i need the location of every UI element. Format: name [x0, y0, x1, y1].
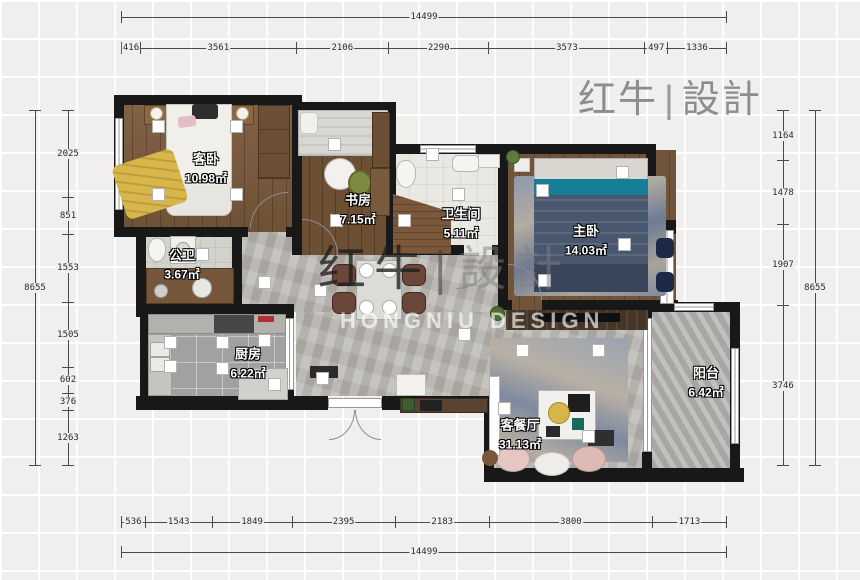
wall	[136, 304, 294, 314]
dim-label: 2395	[332, 517, 356, 527]
dim-segment: 1164	[777, 110, 789, 160]
room-area: 14.03㎡	[565, 243, 607, 260]
floor-plan-canvas: 14499 41635612106229035734971336 5361543…	[0, 0, 860, 580]
watermark-divider: |	[434, 243, 454, 296]
ceiling-light	[328, 138, 341, 151]
yellow-pouf	[548, 402, 570, 424]
brand-logo-cn1: 红牛	[578, 79, 658, 121]
room-name: 书房	[345, 193, 371, 208]
dim-label: 14499	[409, 12, 438, 22]
dim-segment: 602	[62, 367, 74, 394]
room-name: 公卫	[169, 248, 195, 263]
entry-door-arc-left	[329, 410, 355, 440]
dim-label: 1713	[678, 517, 702, 527]
cabinet	[372, 112, 390, 168]
dim-label: 3800	[559, 517, 583, 527]
ceiling-light	[216, 336, 229, 349]
ceiling-light	[452, 188, 465, 201]
dim-label: 3573	[555, 43, 579, 53]
table-lamp	[236, 107, 249, 120]
decor-items	[420, 400, 442, 411]
ceiling-light	[616, 166, 629, 179]
table-decor	[546, 426, 560, 437]
dim-segment: 536	[121, 516, 145, 528]
spice-rack	[258, 316, 274, 322]
bed-tray	[192, 104, 218, 119]
dim-label: 536	[124, 517, 142, 527]
dim-segment: 3561	[140, 42, 296, 54]
room-name: 客餐厅	[500, 418, 539, 433]
ceiling-light	[152, 188, 165, 201]
entry-door-arc-right	[355, 410, 381, 440]
room-name: 客卧	[193, 152, 219, 167]
dim-label: 8655	[23, 283, 47, 293]
ceiling-light	[426, 148, 439, 161]
room-label-kitchen: 厨房6.22㎡	[230, 343, 265, 384]
dim-segment: 416	[121, 42, 140, 54]
room-name: 主卧	[573, 224, 599, 239]
plant	[506, 150, 520, 164]
dim-segment: 8655	[809, 110, 821, 466]
brand-logo-cn2: 設計	[682, 79, 762, 121]
dim-segment: 2290	[388, 42, 488, 54]
dim-segment: 1849	[212, 516, 292, 528]
ceiling-light	[316, 372, 329, 385]
dim-chain-left-total: 8655	[29, 110, 41, 466]
watermark-cn: 红牛|設計	[318, 246, 571, 294]
ceiling-light	[230, 188, 243, 201]
wardrobe	[258, 105, 290, 179]
table-decor	[568, 394, 590, 412]
room-name: 阳台	[693, 366, 719, 381]
dim-segment: 3800	[489, 516, 652, 528]
room-label-guest-wc: 公卫3.67㎡	[164, 244, 199, 285]
dim-label: 14499	[409, 547, 438, 557]
pillow	[300, 112, 318, 134]
dim-label: 416	[122, 43, 140, 53]
watermark-en: HONGNIU DESIGN	[340, 308, 604, 334]
dim-label: 851	[59, 211, 77, 221]
dim-label: 1336	[685, 43, 709, 53]
ceiling-light	[230, 120, 243, 133]
dim-segment: 497	[644, 42, 667, 54]
ceiling-light	[216, 362, 229, 375]
pink-armchair	[572, 446, 606, 472]
dim-segment: 376	[62, 393, 74, 410]
white-armchair	[534, 452, 570, 476]
dim-segment: 2395	[292, 516, 395, 528]
curtain	[656, 238, 674, 258]
room-area: 10.98㎡	[185, 171, 227, 188]
cooktop	[214, 315, 254, 333]
dim-segment: 1336	[667, 42, 727, 54]
dim-chain-bottom-total: 14499	[121, 546, 727, 558]
dim-label: 1553	[56, 263, 80, 273]
ceiling-light	[618, 238, 631, 251]
room-name: 厨房	[235, 347, 261, 362]
dim-segment: 1553	[62, 234, 74, 301]
dim-segment: 3746	[777, 305, 789, 466]
dim-label: 3561	[206, 43, 230, 53]
ceiling-light	[164, 360, 177, 373]
dim-segment: 2106	[296, 42, 388, 54]
dim-segment: 2183	[395, 516, 489, 528]
table-lamp	[150, 107, 163, 120]
room-label-balcony: 阳台6.42㎡	[688, 362, 723, 403]
toilet	[148, 238, 166, 262]
dim-label: 376	[59, 397, 77, 407]
room-area: 7.15㎡	[340, 212, 375, 229]
ceiling-light	[164, 336, 177, 349]
dim-chain-right-segments: 1164147819073746	[777, 110, 789, 466]
brand-logo-divider: |	[664, 79, 676, 121]
wall	[484, 468, 744, 482]
bath-shelf	[478, 154, 500, 168]
ceiling-light	[536, 184, 549, 197]
dim-label: 1505	[56, 330, 80, 340]
watermark-cn1: 红牛	[318, 243, 430, 296]
ceiling-light	[582, 430, 595, 443]
wall	[136, 396, 328, 410]
sink	[452, 155, 480, 172]
dim-segment: 1263	[62, 410, 74, 466]
room-label-bathroom: 卫生间5.11㎡	[441, 203, 480, 244]
stool	[154, 284, 168, 298]
dim-segment: 14499	[121, 11, 727, 23]
entry-cabinet	[396, 374, 426, 396]
ceiling-light	[268, 378, 281, 391]
toilet	[396, 160, 416, 188]
balcony-sliding-door	[643, 318, 652, 452]
master-bed-pillows	[534, 158, 648, 180]
dim-segment: 851	[62, 197, 74, 234]
dim-chain-right-total: 8655	[809, 110, 821, 466]
dim-segment: 1907	[777, 224, 789, 306]
room-name: 卫生间	[441, 207, 480, 222]
room-area: 5.11㎡	[441, 226, 480, 243]
entry-door-threshold	[328, 398, 382, 408]
dim-segment: 1505	[62, 302, 74, 367]
dim-label: 1543	[167, 517, 191, 527]
dim-label: 497	[647, 43, 665, 53]
dim-label: 1907	[771, 260, 795, 270]
curtain	[656, 272, 674, 292]
room-label-study: 书房7.15㎡	[340, 189, 375, 230]
window	[731, 348, 739, 444]
dim-segment: 14499	[121, 546, 727, 558]
dim-chain-top-total: 14499	[121, 11, 727, 23]
dim-segment: 3573	[488, 42, 644, 54]
table-decor-teal	[572, 418, 584, 430]
window	[674, 303, 714, 311]
room-label-living-dining: 客餐厅31.13㎡	[499, 414, 541, 455]
ceiling-light	[516, 344, 529, 357]
ceiling-light	[258, 276, 271, 289]
room-label-master-bedroom: 主卧14.03㎡	[565, 220, 607, 261]
plant	[402, 398, 415, 411]
dim-segment: 8655	[29, 110, 41, 466]
ceiling-light	[398, 214, 411, 227]
dim-label: 2290	[427, 43, 451, 53]
dim-label: 3746	[771, 381, 795, 391]
dim-segment: 1478	[777, 160, 789, 224]
dim-label: 602	[59, 375, 77, 385]
dim-label: 1263	[56, 433, 80, 443]
door-stop	[482, 450, 498, 466]
room-area: 3.67㎡	[164, 267, 199, 284]
ceiling-light	[152, 120, 165, 133]
brand-logo: 红牛|設計	[578, 68, 762, 123]
dim-label: 2106	[330, 43, 354, 53]
dim-label: 8655	[803, 283, 827, 293]
dim-chain-left-segments: 2025851155315056023761263	[62, 110, 74, 466]
dim-chain-bottom-segments: 536154318492395218338001713	[121, 516, 727, 528]
ceiling-light	[592, 344, 605, 357]
dim-segment: 1713	[652, 516, 727, 528]
master-bed-teal-runner	[534, 179, 648, 195]
watermark-cn2: 設計	[458, 243, 570, 296]
dim-chain-top-segments: 41635612106229035734971336	[121, 42, 727, 54]
dim-label: 2183	[430, 517, 454, 527]
dim-label: 1164	[771, 131, 795, 141]
dim-label: 1849	[240, 517, 264, 527]
room-area: 6.22㎡	[230, 366, 265, 383]
dim-segment: 2025	[62, 110, 74, 197]
room-label-guest-bedroom: 客卧10.98㎡	[185, 148, 227, 189]
room-area: 31.13㎡	[499, 437, 541, 454]
dim-label: 1478	[771, 188, 795, 198]
dim-label: 2025	[56, 149, 80, 159]
room-area: 6.42㎡	[688, 385, 723, 402]
dim-segment: 1543	[145, 516, 212, 528]
wall	[504, 144, 656, 154]
wall	[642, 452, 652, 470]
